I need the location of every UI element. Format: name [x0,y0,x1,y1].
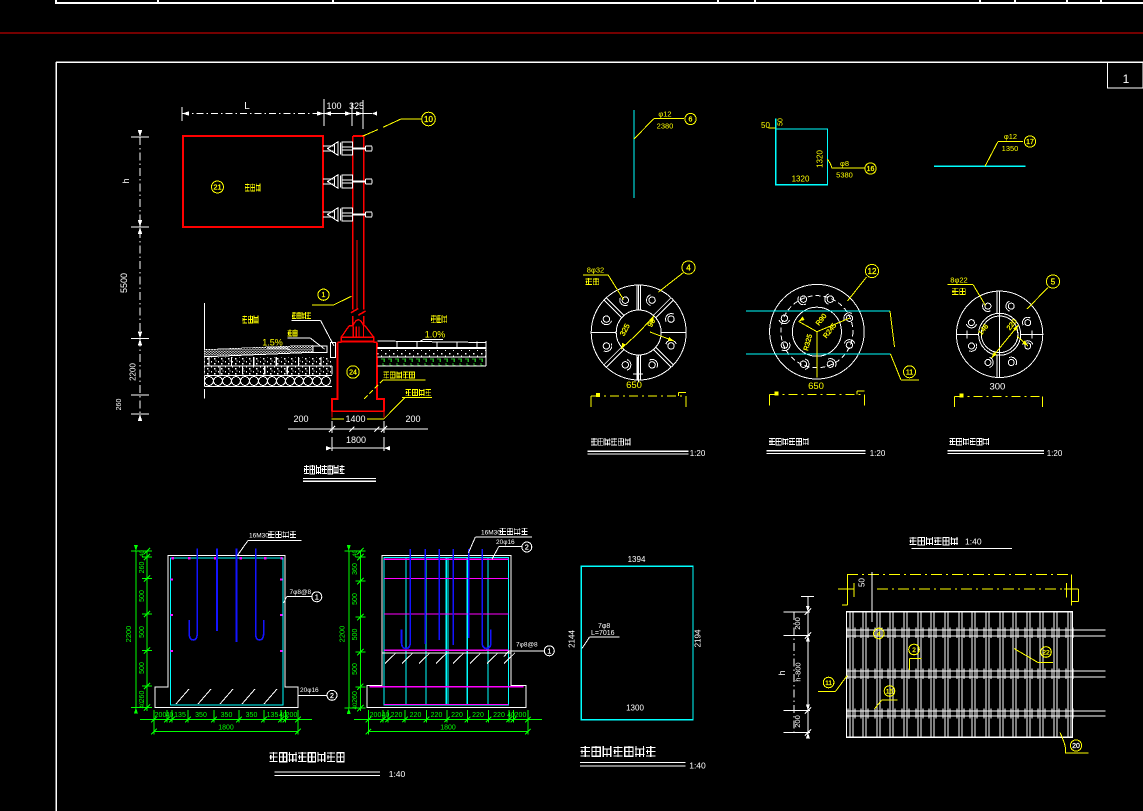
svg-text:1: 1 [315,594,319,601]
svg-text:500: 500 [139,590,146,602]
svg-text:φ8: φ8 [840,159,849,168]
svg-text:20φ16: 20φ16 [496,539,515,546]
svg-text:50: 50 [778,118,785,126]
svg-text:7φ8@8: 7φ8@8 [516,642,538,649]
svg-text:1:40: 1:40 [389,769,406,779]
svg-text:1.0%: 1.0% [425,329,446,339]
svg-text:1.5%: 1.5% [262,338,283,348]
svg-text:200: 200 [515,712,527,719]
svg-text:5380: 5380 [836,171,853,180]
svg-text:200: 200 [370,712,382,719]
svg-text:200: 200 [405,414,420,424]
svg-text:220: 220 [391,712,403,719]
svg-text:325: 325 [349,101,364,111]
svg-text:h: h [121,178,131,183]
svg-text:11: 11 [825,680,832,687]
svg-text:220: 220 [410,712,422,719]
svg-text:16: 16 [867,166,875,173]
svg-text:22: 22 [1042,649,1050,656]
svg-text:1800: 1800 [218,725,234,732]
svg-text:2194: 2194 [694,629,703,647]
svg-text:6: 6 [689,117,693,124]
svg-text:500: 500 [352,629,359,641]
svg-text:11: 11 [906,369,913,376]
svg-text:17: 17 [1026,139,1034,146]
svg-text:500: 500 [139,662,146,674]
svg-text:φ12: φ12 [1004,132,1017,141]
svg-text:1: 1 [322,292,326,299]
svg-text:1:40: 1:40 [965,537,982,547]
svg-text:40: 40 [166,712,174,719]
svg-text:2144: 2144 [568,630,577,648]
svg-text:15: 15 [886,688,894,695]
svg-text:2200: 2200 [129,363,138,381]
svg-text:100: 100 [326,101,341,111]
svg-text:21: 21 [213,183,221,192]
svg-text:260: 260 [116,399,123,411]
svg-text:200: 200 [293,414,308,424]
svg-text:350: 350 [221,712,233,719]
svg-text:40: 40 [382,712,390,719]
svg-text:7φ8: 7φ8 [598,623,610,630]
svg-text:1350: 1350 [1002,144,1019,153]
svg-text:20: 20 [1072,743,1080,750]
svg-text:1320: 1320 [792,175,810,184]
svg-text:L=7016: L=7016 [591,630,615,637]
svg-text:360: 360 [352,563,359,575]
svg-text:1394: 1394 [628,555,646,564]
svg-text:135: 135 [174,712,186,719]
svg-text:16M30: 16M30 [481,530,501,537]
svg-text:350: 350 [195,712,207,719]
svg-text:5500: 5500 [119,273,129,293]
svg-text:L: L [244,101,250,112]
svg-text:φ12: φ12 [658,109,671,118]
svg-text:h: h [777,670,787,675]
svg-text:2: 2 [330,693,334,700]
svg-text:220: 220 [472,712,484,719]
svg-text:1400: 1400 [345,414,365,424]
svg-text:50: 50 [858,578,867,587]
svg-text:260: 260 [352,691,359,703]
svg-text:300: 300 [989,382,1005,393]
svg-text:260: 260 [139,562,146,574]
svg-text:1: 1 [1123,72,1130,86]
svg-text:135: 135 [267,712,279,719]
svg-text:260: 260 [139,691,146,703]
svg-text:2380: 2380 [657,122,674,131]
svg-text:1:40: 1:40 [689,761,706,771]
svg-text:350: 350 [246,712,258,719]
svg-text:1:20: 1:20 [1047,449,1063,458]
svg-text:5: 5 [1051,277,1056,286]
svg-text:1320: 1320 [816,150,825,168]
svg-text:650: 650 [626,380,642,391]
svg-text:220: 220 [493,712,505,719]
svg-text:2200: 2200 [337,626,346,643]
svg-text:1800: 1800 [440,725,456,732]
svg-text:4: 4 [877,631,881,638]
svg-text:650: 650 [808,381,824,392]
svg-text:2: 2 [912,647,916,654]
svg-text:500: 500 [352,663,359,675]
svg-text:2: 2 [525,545,529,552]
svg-text:1: 1 [547,648,551,655]
svg-text:220: 220 [451,712,463,719]
svg-text:200: 200 [286,712,298,719]
svg-text:24: 24 [349,370,357,377]
svg-text:12: 12 [868,267,877,276]
svg-text:1:20: 1:20 [870,449,886,458]
svg-text:220: 220 [431,712,443,719]
svg-text:h-800: h-800 [794,662,803,681]
svg-text:1300: 1300 [626,704,644,713]
svg-text:1:20: 1:20 [690,449,706,458]
svg-text:500: 500 [352,593,359,605]
svg-text:8φ22: 8φ22 [950,276,967,285]
svg-text:500: 500 [139,626,146,638]
svg-text:10: 10 [424,115,433,124]
svg-text:16M30: 16M30 [249,533,269,540]
svg-text:8φ32: 8φ32 [587,266,604,275]
svg-text:1800: 1800 [346,435,366,445]
svg-text:2200: 2200 [124,626,133,643]
svg-text:7φ8@8: 7φ8@8 [290,589,312,596]
svg-text:20φ16: 20φ16 [300,687,319,694]
svg-text:4: 4 [686,263,691,272]
